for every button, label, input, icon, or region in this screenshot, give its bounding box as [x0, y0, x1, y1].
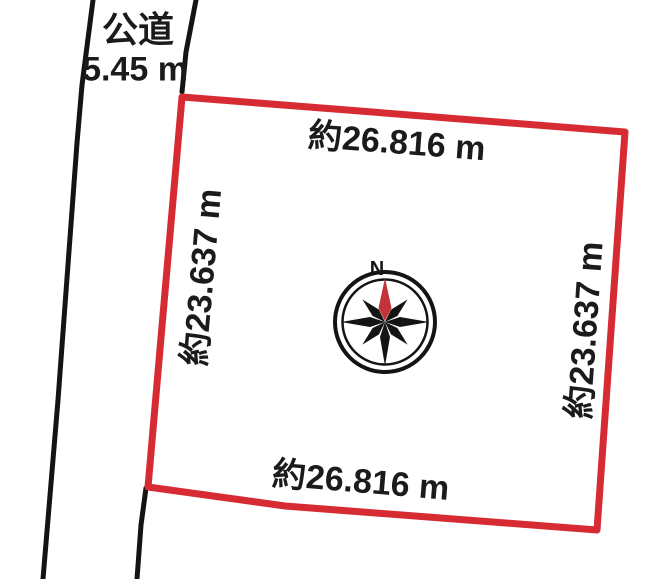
road-edge-line-right-lower — [137, 488, 146, 579]
road-width-label: 5.45 m — [82, 51, 188, 90]
compass-rose: N — [335, 258, 435, 372]
road-name-label: 公道 — [102, 1, 174, 53]
compass-north-label: N — [370, 258, 384, 280]
land-plot-diagram: N 公道 5.45 m 約26.816 m 約26.816 m 約23.637 … — [0, 0, 660, 579]
